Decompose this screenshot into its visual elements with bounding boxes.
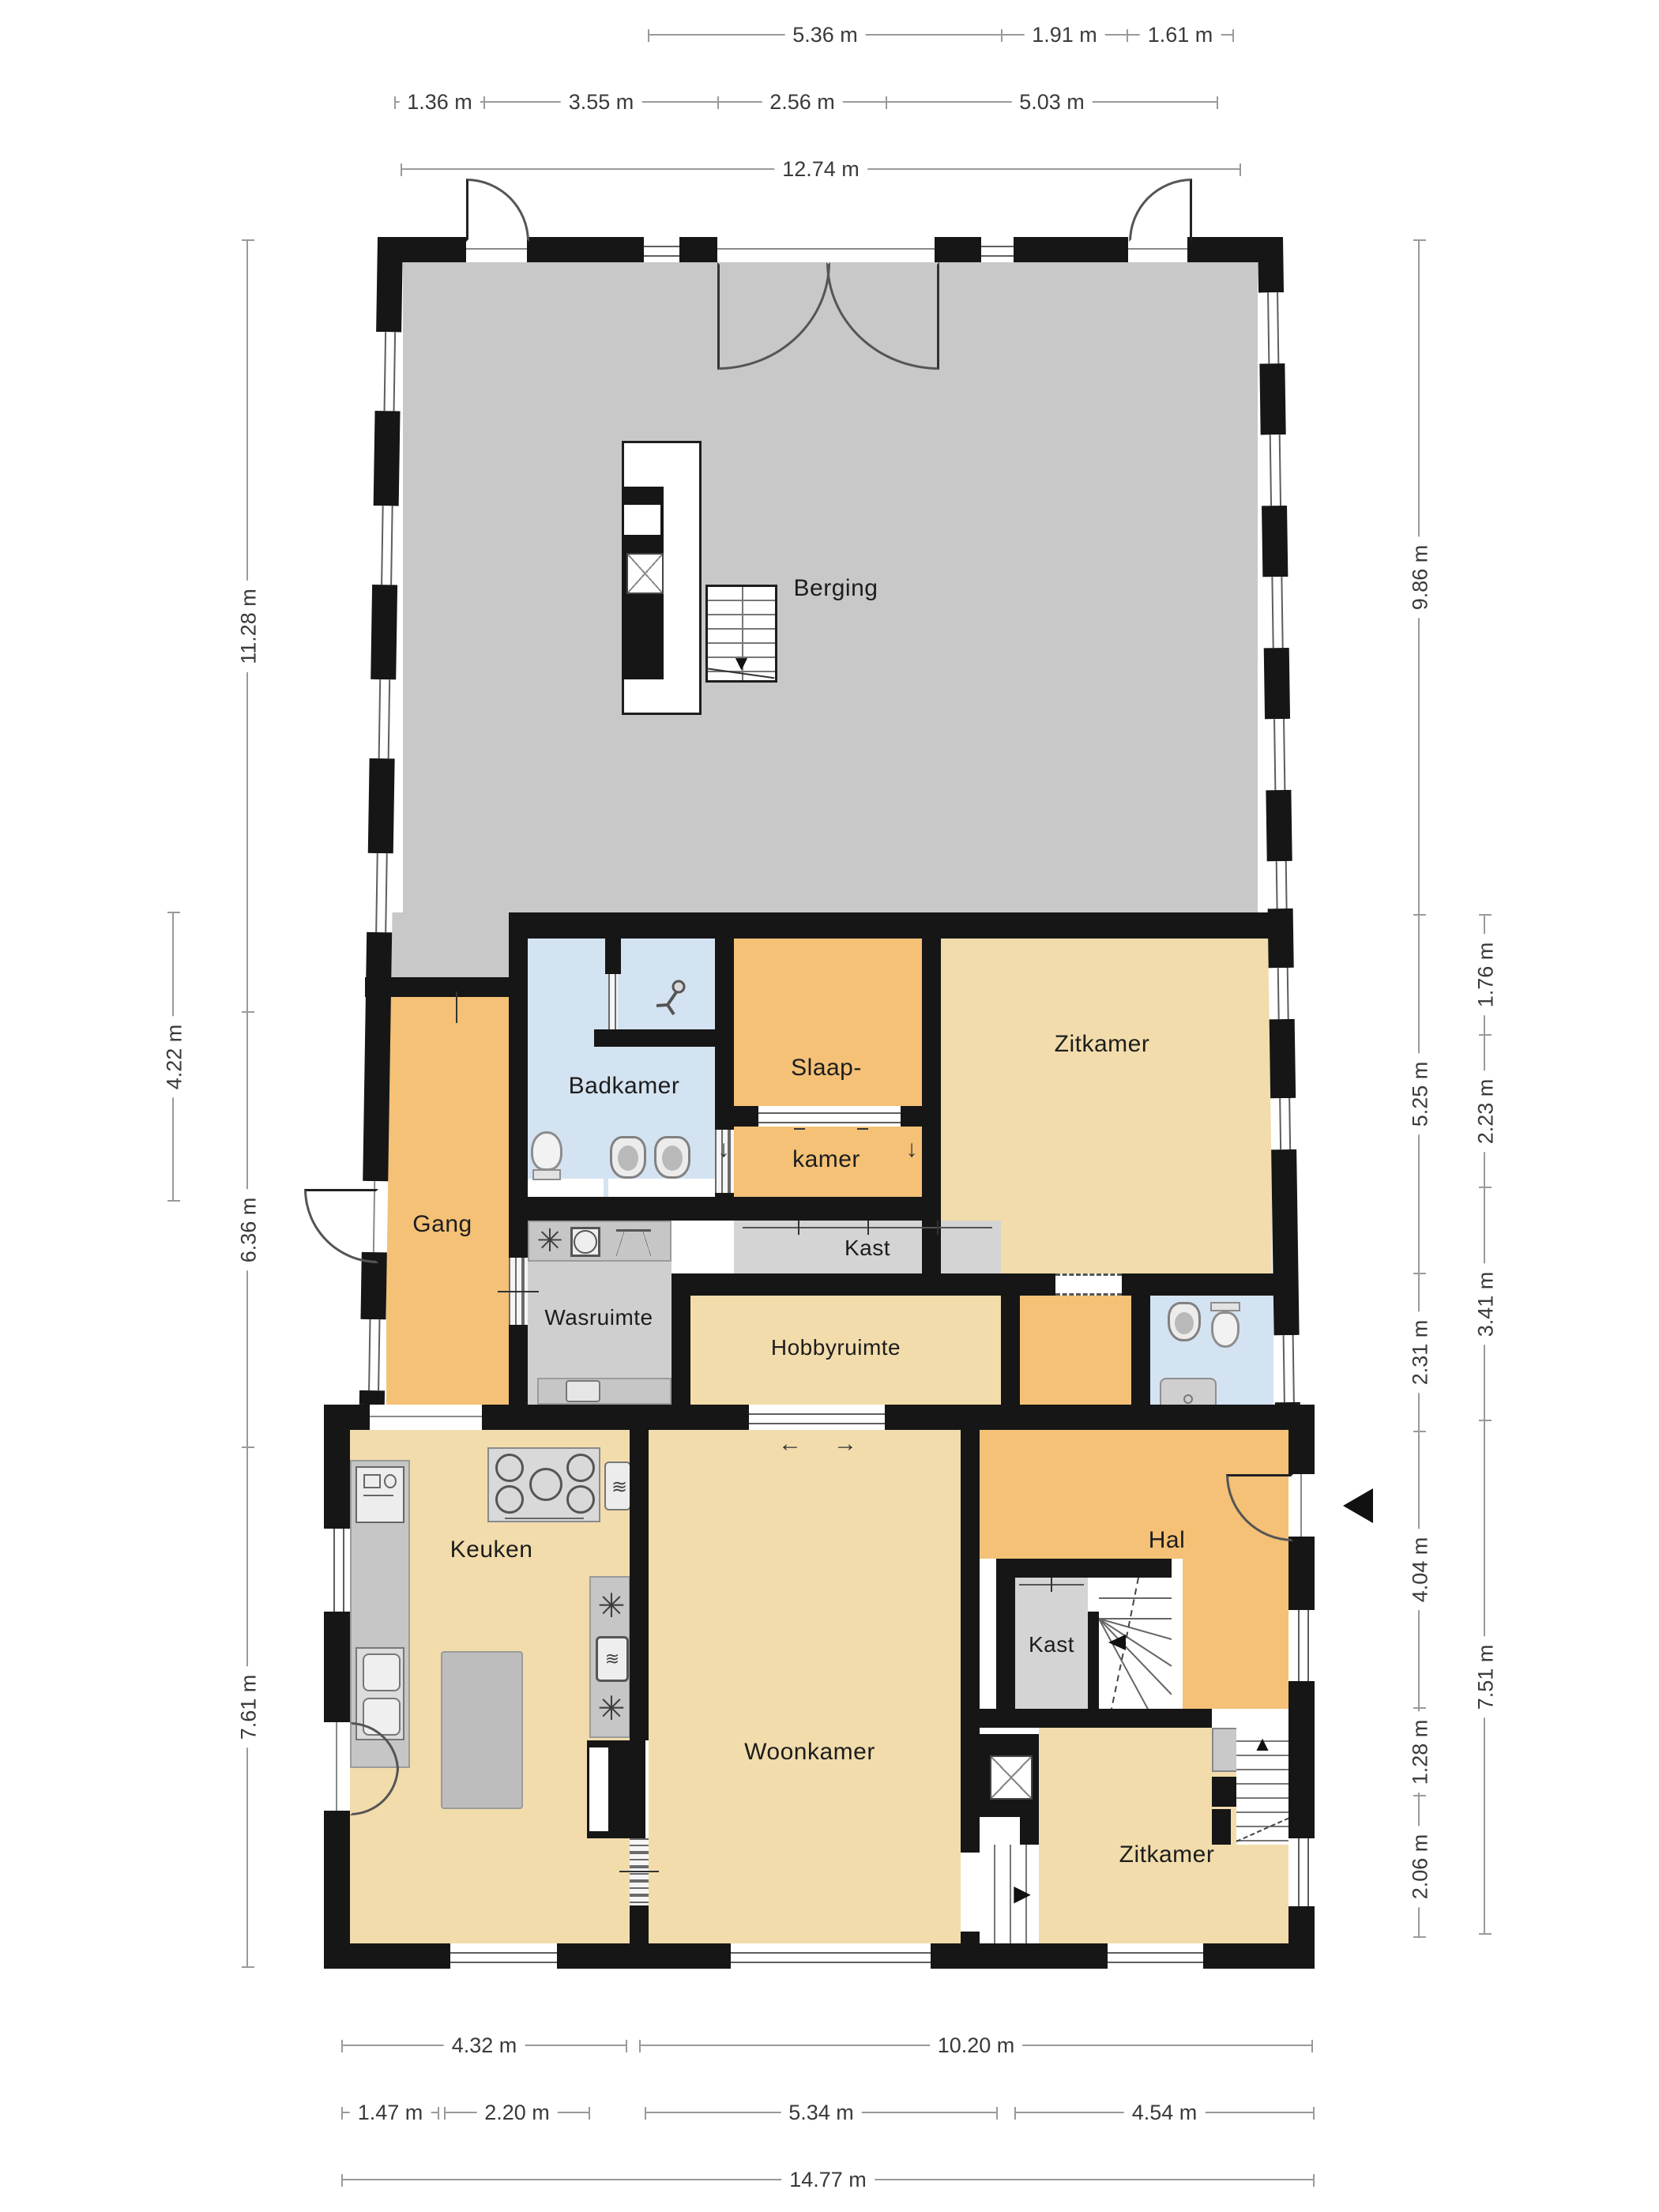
wall-segment — [482, 1405, 749, 1430]
window — [375, 332, 402, 411]
window — [1108, 1943, 1203, 1969]
toilet-bowl — [531, 1131, 562, 1171]
room-label-berging: Berging — [794, 575, 878, 602]
window — [370, 679, 397, 758]
room-label-kast-mid: Kast — [845, 1236, 890, 1261]
window — [1270, 1098, 1296, 1149]
wall-segment — [359, 1390, 385, 1405]
dimension-label: 6.36 m — [237, 1189, 261, 1270]
dimension-label: 2.20 m — [476, 2101, 558, 2125]
dimension: 1.36 m — [395, 101, 484, 103]
dimension: 1.91 m — [1002, 34, 1127, 36]
shower-icon — [653, 980, 689, 1018]
wall-badkamer-south — [509, 1197, 922, 1221]
ventilation-fan-icon: ✳ — [536, 1225, 563, 1257]
wc-toilet-tank — [1210, 1302, 1240, 1311]
dimension-label: 3.55 m — [561, 90, 642, 115]
wall-woonkamer-hal — [961, 1430, 980, 1853]
dimension: 1.28 m — [1418, 1708, 1420, 1796]
wall-lobby-toilet — [1131, 1296, 1150, 1430]
window — [359, 1319, 386, 1390]
dimension: 5.36 m — [649, 34, 1002, 36]
internal-window — [758, 1106, 901, 1127]
window — [1267, 861, 1293, 908]
window — [1288, 1610, 1315, 1681]
dimension-label: 1.47 m — [350, 2101, 431, 2125]
wall-slaap-zitkamer — [922, 939, 941, 1296]
wall-keuken-woonkamer — [630, 1905, 649, 1943]
dimension: 2.23 m — [1484, 1035, 1485, 1187]
door-swing — [1129, 179, 1192, 242]
laundry-sink — [566, 1380, 600, 1402]
dimension: 1.76 m — [1484, 915, 1485, 1035]
wall-keuken-woonkamer — [630, 1430, 649, 1740]
dimension: 6.36 m — [246, 1012, 248, 1447]
dimension: 4.54 m — [1015, 2112, 1314, 2113]
fan-icon: ✳ — [597, 1589, 625, 1623]
wall-segment — [374, 411, 401, 506]
sliding-door — [749, 1405, 885, 1430]
chimney-flue-icon — [990, 1755, 1033, 1800]
wall-zitkamer-west — [1020, 1817, 1039, 1845]
sink — [610, 1136, 646, 1179]
dimension-label: 1.28 m — [1409, 1711, 1433, 1793]
wall-segment — [1203, 1943, 1315, 1969]
dimension-label: 2.23 m — [1474, 1070, 1499, 1152]
shower-wall — [594, 1029, 734, 1047]
passage-opening — [370, 1405, 482, 1430]
wall-segment — [931, 1943, 1108, 1969]
entrance-arrow-icon — [1343, 1488, 1373, 1523]
stairs-down-arrow-icon: ▼ — [732, 653, 752, 673]
wall-segment — [376, 237, 403, 332]
kitchen-island — [441, 1651, 523, 1809]
dimension: 12.74 m — [401, 168, 1240, 170]
wc-toilet-bowl — [1211, 1311, 1240, 1348]
wall-segment — [1266, 790, 1292, 861]
stairs-up-arrow-icon: ▲ — [1252, 1733, 1273, 1754]
door-tick — [456, 991, 457, 1023]
dimension: 5.03 m — [886, 101, 1217, 103]
wall-mid-south — [1122, 1273, 1283, 1296]
window — [1269, 968, 1295, 1019]
dimension-label: 4.04 m — [1409, 1529, 1433, 1611]
dimension-label: 10.20 m — [930, 2033, 1023, 2058]
wall-segment — [1014, 237, 1128, 262]
dimension-label: 5.25 m — [1409, 1054, 1433, 1135]
dimension: 9.86 m — [1418, 240, 1420, 915]
dimension: 1.61 m — [1127, 34, 1233, 36]
dimension: 2.31 m — [1418, 1273, 1420, 1431]
room-label-slaapkamer-1: Slaap- — [791, 1055, 862, 1082]
wall-segment — [1288, 1430, 1315, 1474]
room-woonkamer — [649, 1430, 961, 1943]
window — [372, 506, 399, 585]
wall-hobby-east — [1001, 1273, 1020, 1430]
dimension-label: 5.03 m — [1011, 90, 1093, 115]
wall-segment — [1270, 1019, 1296, 1098]
steps-arrow-icon: ▶ — [1014, 1883, 1031, 1905]
shower-wall-stub — [605, 939, 621, 974]
french-door-opening — [324, 1722, 350, 1811]
winder-stairs — [1099, 1578, 1172, 1712]
room-hal-side — [1183, 1559, 1288, 1709]
room-label-gang: Gang — [412, 1211, 472, 1238]
window-tick — [794, 1128, 805, 1130]
dimension-label: 4.54 m — [1124, 2101, 1206, 2125]
gas-stove — [487, 1447, 600, 1522]
room-label-hobbyruimte: Hobbyruimte — [771, 1335, 901, 1360]
room-label-zitkamer-bottom: Zitkamer — [1119, 1841, 1215, 1868]
dimension: 3.41 m — [1484, 1187, 1485, 1420]
wall-segment — [1271, 1149, 1299, 1335]
dimension-label: 14.77 m — [781, 2168, 875, 2192]
wall-segment — [371, 585, 397, 679]
door-swing — [466, 179, 529, 242]
window — [450, 1943, 557, 1969]
fan-icon: ✳ — [597, 1692, 625, 1725]
wall-segment — [1288, 1537, 1315, 1610]
room-label-wasruimte: Wasruimte — [544, 1305, 653, 1330]
wall-segment — [1259, 363, 1285, 434]
wall-mid-south — [671, 1273, 1055, 1296]
wall-segment — [324, 1943, 450, 1969]
window — [1274, 1335, 1300, 1402]
dimension-label: 5.36 m — [784, 23, 866, 47]
dimension-label: 3.41 m — [1474, 1263, 1499, 1345]
window — [367, 853, 393, 932]
wall-segment — [363, 932, 392, 1181]
floor-plan: ▼ ✳ ≋ — [0, 0, 1659, 2212]
upstairs-staircase: ▲ — [1236, 1728, 1288, 1845]
room-label-slaapkamer-2: kamer — [792, 1146, 860, 1173]
wall-kast-west — [996, 1559, 1015, 1712]
height-arrow-icon: ↓ — [906, 1138, 918, 1161]
dimension: 11.28 m — [246, 240, 248, 1012]
window — [1262, 577, 1288, 648]
laundry-sink-counter — [537, 1378, 671, 1405]
vanity-counter — [608, 1179, 715, 1197]
window — [981, 237, 1014, 262]
dimension-label: 12.74 m — [774, 157, 867, 182]
dimension-label: 5.34 m — [781, 2101, 862, 2125]
dimension-label: 1.91 m — [1024, 23, 1105, 47]
room-label-zitkamer-mid: Zitkamer — [1055, 1031, 1150, 1058]
wall-segment — [1262, 506, 1288, 577]
rail-tick — [867, 1221, 869, 1235]
island-cabinet — [624, 505, 660, 535]
appliance-stack: ✳ ≋ ✳ — [589, 1576, 630, 1738]
dimension-label: 11.28 m — [237, 581, 261, 672]
dimension: 2.56 m — [718, 101, 886, 103]
dimension: 3.55 m — [484, 101, 718, 103]
wall-segment — [324, 1405, 370, 1430]
wall-gang-east — [509, 1325, 528, 1405]
wall-segment — [557, 1943, 731, 1969]
wall-segment — [527, 237, 644, 262]
double-door-opening — [717, 237, 935, 262]
window — [1288, 1838, 1315, 1906]
wall-segment — [368, 758, 395, 853]
wall-gang-north — [365, 977, 528, 997]
dimension: 1.47 m — [342, 2112, 438, 2113]
window — [324, 1529, 350, 1612]
dimension-label: 1.61 m — [1140, 23, 1221, 47]
rail-tick — [937, 1221, 939, 1235]
island-shaft-icon — [626, 553, 664, 594]
window — [1261, 434, 1287, 506]
dimension-label: 2.06 m — [1409, 1826, 1433, 1907]
slide-arrow-right-icon: → — [833, 1432, 857, 1456]
door-tick — [619, 1871, 659, 1872]
rail-tick — [798, 1221, 799, 1235]
dimension: 14.77 m — [342, 2179, 1314, 2180]
dryer-icon — [616, 1229, 651, 1256]
washing-machine-icon — [570, 1227, 600, 1257]
fireplace-niche — [589, 1747, 608, 1831]
room-label-keuken: Keuken — [450, 1537, 533, 1563]
shower-glass — [608, 974, 618, 1029]
wall-woonkamer-hal — [961, 1932, 980, 1943]
waves-icon: ≋ — [605, 1650, 619, 1668]
steps-to-zitkamer: ▶ — [980, 1845, 1039, 1943]
height-arrow-icon: ↓ — [718, 1138, 730, 1161]
dimension-label: 7.51 m — [1474, 1637, 1499, 1718]
room-label-kast-hal: Kast — [1029, 1632, 1074, 1657]
wall-segment — [1258, 237, 1284, 292]
dimension: 4.32 m — [342, 2045, 626, 2046]
wall-segment — [324, 1612, 350, 1722]
extractor-hood-icon: ≋ — [604, 1461, 631, 1510]
dimension-label: 1.76 m — [1474, 935, 1499, 1016]
wall-segment — [885, 1405, 980, 1430]
wall-segment — [1264, 648, 1290, 719]
door-tick — [498, 1291, 539, 1292]
dimension: 10.20 m — [640, 2045, 1312, 2046]
dashed-opening — [1055, 1273, 1122, 1296]
rail-tick — [1051, 1578, 1052, 1592]
dimension: 7.51 m — [1484, 1420, 1485, 1934]
dimension: 4.22 m — [172, 912, 174, 1201]
wall-segment — [1288, 1681, 1315, 1838]
window-tick — [857, 1128, 868, 1130]
wall-stairs-west — [1212, 1809, 1231, 1845]
berging-stairs: ▼ — [705, 585, 777, 683]
window — [1265, 719, 1291, 790]
dimension: 4.04 m — [1418, 1431, 1420, 1708]
dimension: 5.34 m — [645, 2112, 997, 2113]
dimension: 2.06 m — [1418, 1796, 1420, 1937]
dimension-label: 2.56 m — [762, 90, 843, 115]
room-label-woonkamer: Woonkamer — [744, 1739, 875, 1766]
window — [644, 237, 679, 262]
dimension: 2.20 m — [445, 2112, 589, 2113]
wall-kast-north — [996, 1559, 1172, 1578]
window — [731, 1943, 931, 1969]
room-label-badkamer: Badkamer — [569, 1073, 680, 1100]
window — [1258, 292, 1285, 363]
dimension-label: 4.32 m — [444, 2033, 525, 2058]
wc-sink — [1168, 1302, 1201, 1341]
dimension-label: 2.31 m — [1409, 1312, 1433, 1394]
slide-arrow-left-icon: ← — [778, 1432, 802, 1456]
dishwasher-icon — [355, 1466, 404, 1523]
sink — [654, 1136, 690, 1179]
dimension-label: 4.22 m — [163, 1016, 187, 1097]
dimension-label: 1.36 m — [399, 90, 480, 115]
wall-segment — [935, 237, 981, 262]
dimension-label: 7.61 m — [237, 1667, 261, 1748]
room-label-hal: Hal — [1149, 1527, 1186, 1554]
wall-kast-stairs — [1088, 1612, 1099, 1712]
room-gang — [386, 997, 509, 1405]
dimension: 7.61 m — [246, 1447, 248, 1967]
wall-berging-south — [509, 912, 1283, 939]
wall-hal-zitkamer — [980, 1709, 1212, 1728]
wall-segment — [679, 237, 717, 262]
wall-hobby-west — [671, 1273, 690, 1405]
door-swing — [304, 1189, 378, 1263]
dimension-label: 9.86 m — [1409, 537, 1433, 619]
dimension: 5.25 m — [1418, 915, 1420, 1273]
toilet-tank — [532, 1169, 561, 1180]
waves-icon: ≋ — [611, 1478, 627, 1497]
